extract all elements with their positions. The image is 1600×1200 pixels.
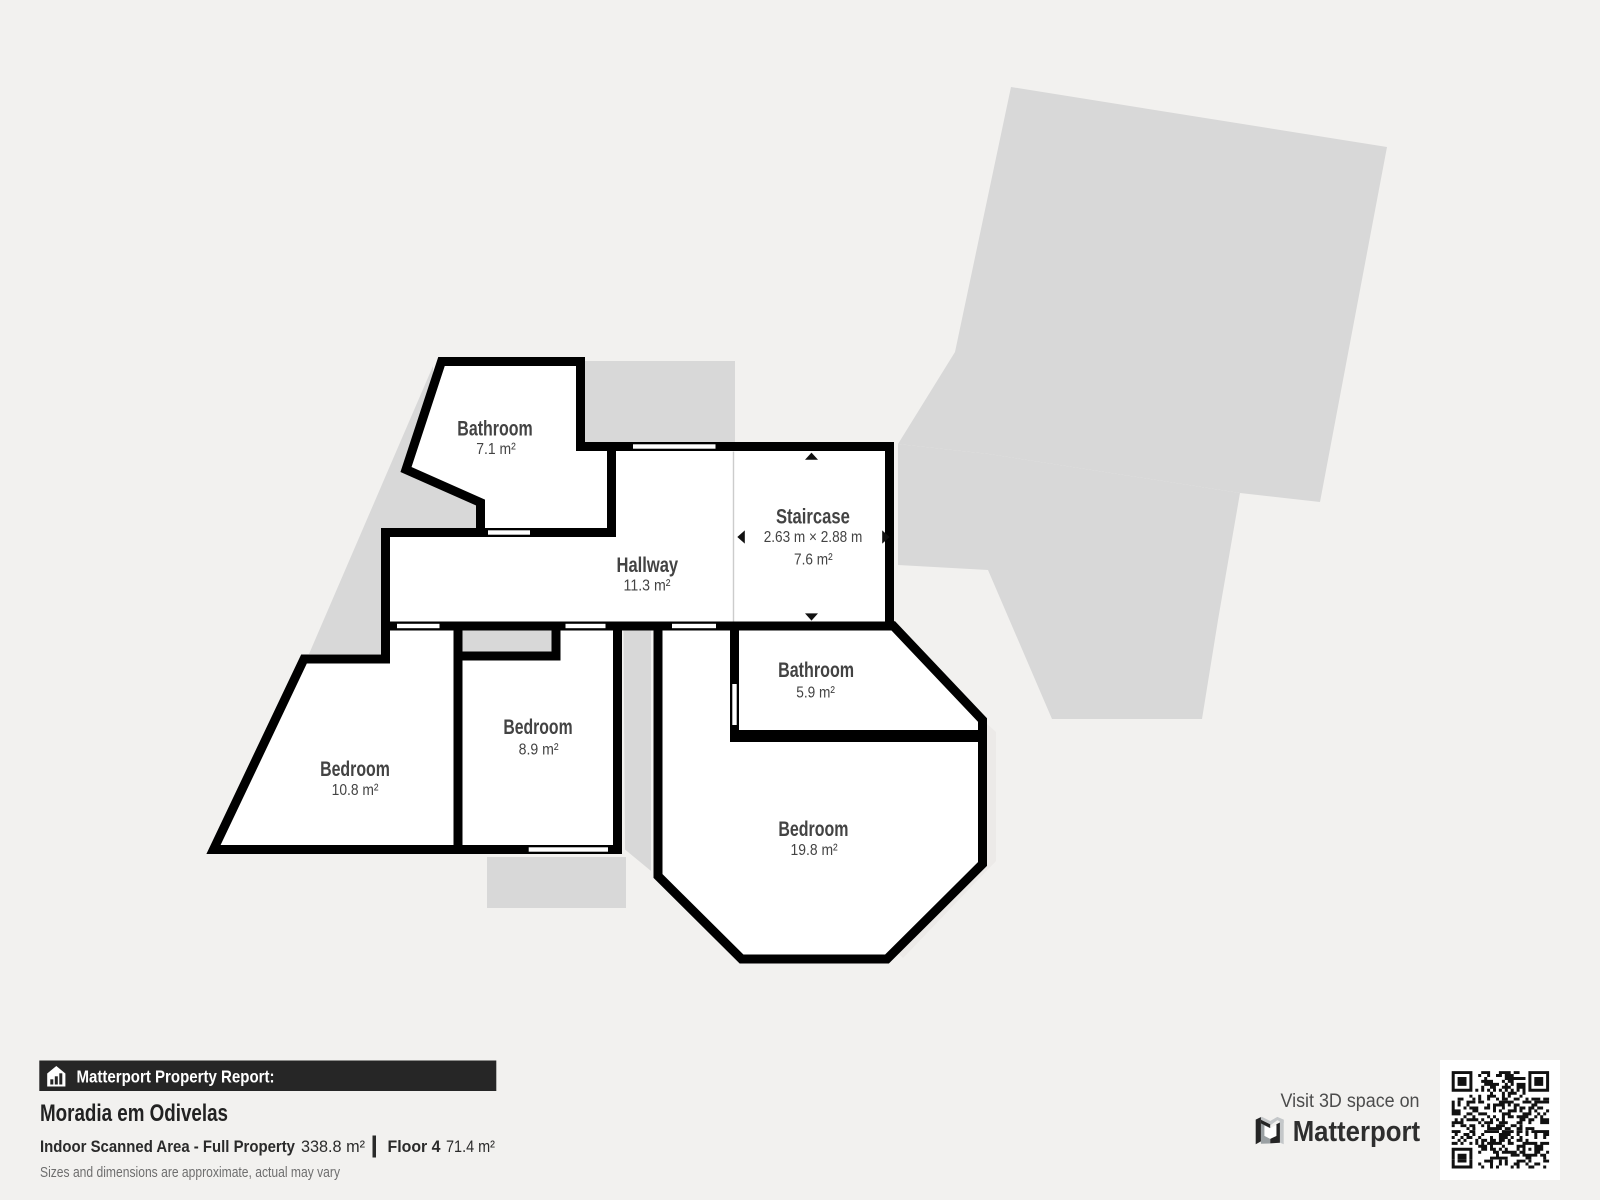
svg-text:Bedroom: Bedroom: [778, 818, 848, 841]
svg-text:8.9 m²: 8.9 m²: [519, 742, 560, 759]
svg-text:Bedroom: Bedroom: [320, 758, 390, 781]
svg-text:Indoor Scanned Area - Full Pro: Indoor Scanned Area - Full Property: [40, 1137, 295, 1156]
svg-text:7.1 m²: 7.1 m²: [476, 441, 516, 458]
svg-text:Visit 3D space on: Visit 3D space on: [1281, 1091, 1420, 1112]
svg-text:Hallway: Hallway: [617, 554, 679, 577]
svg-text:11.3 m²: 11.3 m²: [624, 578, 672, 595]
svg-text:Bedroom: Bedroom: [503, 716, 572, 739]
svg-text:Staircase: Staircase: [776, 505, 850, 528]
svg-text:Bathroom: Bathroom: [778, 659, 854, 682]
svg-text:19.8 m²: 19.8 m²: [791, 842, 839, 859]
svg-text:71.4 m²: 71.4 m²: [446, 1137, 495, 1156]
svg-text:Sizes and dimensions are appro: Sizes and dimensions are approximate, ac…: [40, 1165, 341, 1181]
svg-text:Matterport Property Report:: Matterport Property Report:: [77, 1067, 275, 1087]
svg-text:10.8 m²: 10.8 m²: [332, 782, 379, 799]
svg-text:Matterport: Matterport: [1293, 1116, 1421, 1148]
svg-text:Floor 4: Floor 4: [388, 1137, 442, 1156]
svg-text:7.6 m²: 7.6 m²: [794, 551, 833, 568]
svg-text:2.63 m × 2.88 m: 2.63 m × 2.88 m: [764, 529, 863, 546]
svg-text:Moradia em Odivelas: Moradia em Odivelas: [40, 1100, 228, 1127]
svg-text:5.9 m²: 5.9 m²: [796, 685, 835, 702]
svg-text:338.8 m²: 338.8 m²: [301, 1137, 365, 1156]
svg-text:Bathroom: Bathroom: [457, 418, 532, 441]
